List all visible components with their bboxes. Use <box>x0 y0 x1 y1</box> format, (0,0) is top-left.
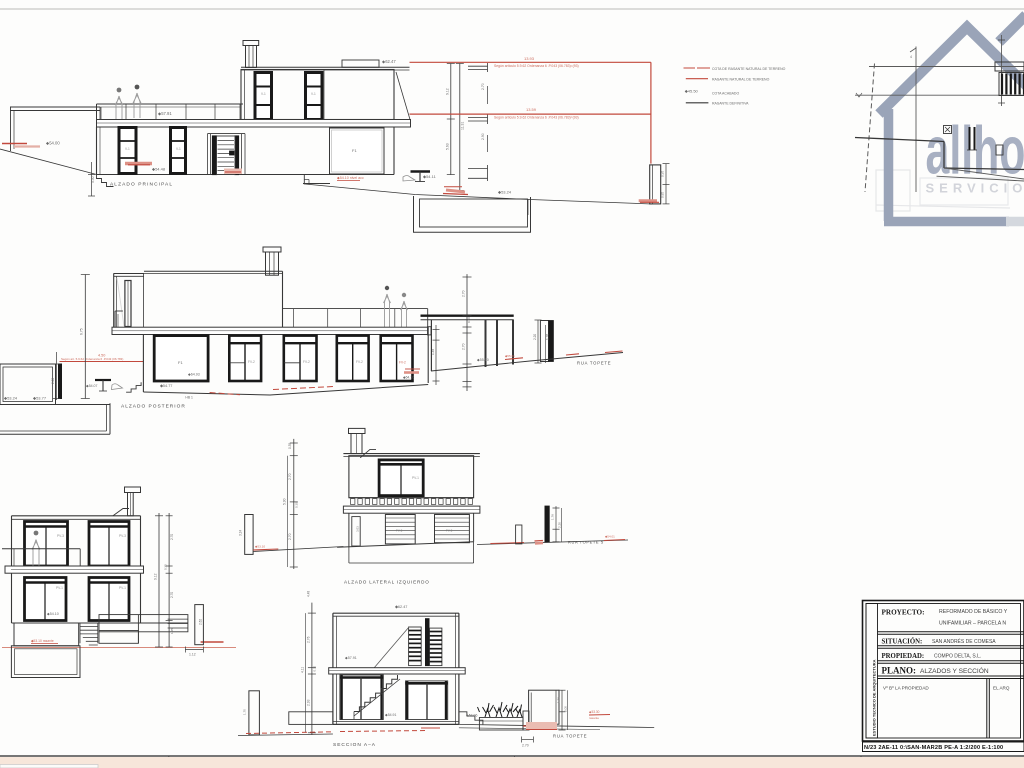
svg-text:2.70: 2.70 <box>170 534 174 540</box>
svg-text:ESTUDIO TECNICO DE ARQUITECTUR: ESTUDIO TECNICO DE ARQUITECTURA <box>872 659 877 736</box>
svg-text:1.76: 1.76 <box>557 697 561 703</box>
svg-text:◆54.48: ◆54.48 <box>152 167 166 172</box>
svg-text:allho: allho <box>926 114 1024 189</box>
svg-text:N/23 2AE-11 0:\SAN-MAR2B PE-A: N/23 2AE-11 0:\SAN-MAR2B PE-A 1:2/200 E-… <box>864 745 1003 751</box>
svg-text:◆54.10: ◆54.10 <box>403 376 414 380</box>
svg-text:1.45: 1.45 <box>170 628 174 634</box>
svg-text:0.85: 0.85 <box>661 192 665 198</box>
svg-text:4.48: 4.48 <box>306 591 310 597</box>
svg-text:◆54.10: ◆54.10 <box>47 612 59 616</box>
svg-text:◆53.24: ◆53.24 <box>498 190 512 195</box>
svg-text:V-1: V-1 <box>311 92 316 96</box>
svg-text:◆54.01: ◆54.01 <box>605 535 615 539</box>
svg-text:RUA TOPETE: RUA TOPETE <box>553 734 587 739</box>
svg-text:RASANTE NATURAL DE TERRENO: RASANTE NATURAL DE TERRENO <box>712 77 770 81</box>
svg-text:FV-2: FV-2 <box>356 360 363 364</box>
svg-text:◆54.77: ◆54.77 <box>160 384 172 388</box>
svg-text:ALZADO PRINCIPAL: ALZADO PRINCIPAL <box>110 182 173 188</box>
svg-text:RUA TOPETE 5: RUA TOPETE 5 <box>568 540 604 545</box>
svg-text:◆54.06: ◆54.06 <box>466 714 478 718</box>
svg-text:3.03: 3.03 <box>356 526 360 532</box>
svg-text:2.70: 2.70 <box>288 473 292 480</box>
svg-text:PROPIEDAD:: PROPIEDAD: <box>882 653 925 660</box>
svg-text:◆54.00: ◆54.00 <box>46 141 60 146</box>
svg-text:◆54.11: ◆54.11 <box>423 174 437 179</box>
svg-text:2.93: 2.93 <box>306 699 310 706</box>
svg-text:0.30: 0.30 <box>91 176 95 183</box>
svg-text:V-1: V-1 <box>176 147 181 151</box>
svg-text:SERVICIOS: SERVICIOS <box>926 181 1024 196</box>
svg-text:◆53.10 rasante: ◆53.10 rasante <box>31 639 54 643</box>
svg-text:SITUACIÓN:: SITUACIÓN: <box>882 638 923 646</box>
svg-text:SAN ANDRÉS DE COMESA: SAN ANDRÉS DE COMESA <box>932 638 996 645</box>
svg-text:Vº Bº LA PROPIEDAD: Vº Bº LA PROPIEDAD <box>883 686 929 691</box>
svg-text:PV-1: PV-1 <box>56 586 63 590</box>
svg-text:2.20: 2.20 <box>533 334 537 340</box>
svg-text:0.30: 0.30 <box>164 564 168 570</box>
svg-text:1.12: 1.12 <box>189 653 196 657</box>
svg-text:COMPO DELTA, S.L.: COMPO DELTA, S.L. <box>934 654 981 660</box>
svg-text:HB 1: HB 1 <box>185 396 193 400</box>
svg-text:2.70: 2.70 <box>481 83 485 90</box>
svg-text:2.20: 2.20 <box>51 378 55 384</box>
svg-text:COTA DE RASANTE NATURAL DE TER: COTA DE RASANTE NATURAL DE TERRENO <box>712 67 786 71</box>
svg-text:2.70: 2.70 <box>288 533 292 540</box>
svg-text:SECCION A–A: SECCION A–A <box>333 742 376 748</box>
svg-text:1.70: 1.70 <box>243 709 247 715</box>
svg-text:2.70: 2.70 <box>170 592 174 598</box>
svg-text:PLANO:: PLANO: <box>882 666 917 676</box>
svg-text:Según artículo 5.9.62 Ordenanz: Según artículo 5.9.62 Ordenanza 6 .P.043… <box>494 64 579 68</box>
svg-text:FV-2: FV-2 <box>248 360 255 364</box>
svg-text:3.24: 3.24 <box>239 530 243 536</box>
svg-text:UNIFAMILIAR – PARCELA N: UNIFAMILIAR – PARCELA N <box>939 621 1006 627</box>
svg-text:0.95: 0.95 <box>661 171 665 177</box>
svg-text:0.60: 0.60 <box>467 317 471 323</box>
svg-text:5.90: 5.90 <box>283 498 287 505</box>
svg-text:rasante: rasante <box>589 716 599 720</box>
svg-text:13.59: 13.59 <box>526 107 537 112</box>
svg-text:Según artículo 5.9.62 Ordenanz: Según artículo 5.9.62 Ordenanza 6 .P.043… <box>494 116 579 120</box>
svg-text:PV-1: PV-1 <box>119 586 126 590</box>
svg-text:EL ARQ: EL ARQ <box>993 686 1010 691</box>
svg-text:◆45.50: ◆45.50 <box>685 89 699 94</box>
svg-text:2.20: 2.20 <box>558 522 562 528</box>
svg-text:FV-2: FV-2 <box>396 529 403 533</box>
svg-text:◆57.91: ◆57.91 <box>158 111 172 116</box>
svg-text:RUA TOPETE: RUA TOPETE <box>577 361 611 366</box>
svg-text:◆54.91: ◆54.91 <box>385 713 397 717</box>
svg-text:◆55.50: ◆55.50 <box>477 358 489 362</box>
svg-text:F1: F1 <box>352 148 357 153</box>
svg-text:1.76: 1.76 <box>551 514 555 520</box>
svg-text:PROYECTO:: PROYECTO: <box>882 609 925 617</box>
svg-text:FV-2: FV-2 <box>399 361 406 365</box>
svg-text:◆62.47: ◆62.47 <box>382 59 396 64</box>
svg-text:11.31: 11.31 <box>461 122 465 130</box>
svg-text:◆64.93: ◆64.93 <box>188 373 200 377</box>
svg-text:F1: F1 <box>178 360 183 365</box>
svg-text:ALZADO LATERAL IZQUIERDO: ALZADO LATERAL IZQUIERDO <box>344 580 430 585</box>
svg-text:RASANTE DEFINITIVA: RASANTE DEFINITIVA <box>712 101 749 105</box>
svg-text:◆54.10 nivel acc: ◆54.10 nivel acc <box>337 176 364 180</box>
svg-text:9.12: 9.12 <box>154 573 158 580</box>
svg-text:◆54.07: ◆54.07 <box>86 384 98 388</box>
svg-text:0.30: 0.30 <box>295 502 299 508</box>
svg-text:◆57.91: ◆57.91 <box>345 656 357 660</box>
svg-text:Según art. 5.9.62 Ordenanza 6: Según art. 5.9.62 Ordenanza 6 .P.043 (06… <box>61 357 123 361</box>
svg-text:ALZADOS Y SECCIÓN: ALZADOS Y SECCIÓN <box>920 666 989 675</box>
svg-text:V-1: V-1 <box>261 92 266 96</box>
svg-text:◆53.30: ◆53.30 <box>589 710 600 714</box>
svg-text:4: 4 <box>910 55 912 59</box>
svg-text:2.76: 2.76 <box>306 636 310 643</box>
svg-text:2.70: 2.70 <box>462 343 466 350</box>
svg-text:0.35: 0.35 <box>288 443 292 449</box>
svg-text:◆55.01: ◆55.01 <box>505 354 515 358</box>
svg-text:2.62: 2.62 <box>199 619 203 625</box>
svg-text:9.12: 9.12 <box>446 88 450 95</box>
svg-text:0.30: 0.30 <box>313 665 317 671</box>
svg-text:6.75: 6.75 <box>80 328 84 335</box>
svg-text:PV-1: PV-1 <box>412 476 419 480</box>
svg-text:PV-3: PV-3 <box>119 534 126 538</box>
svg-text:2.00: 2.00 <box>564 706 568 712</box>
svg-text:4.11: 4.11 <box>301 667 305 673</box>
svg-text:2.70: 2.70 <box>522 744 529 748</box>
svg-text:FV-2: FV-2 <box>303 360 310 364</box>
svg-text:2.70: 2.70 <box>462 290 466 297</box>
svg-text:1.76: 1.76 <box>546 334 550 340</box>
svg-text:PV-3: PV-3 <box>57 534 64 538</box>
svg-text:◆53.24: ◆53.24 <box>4 396 18 401</box>
svg-text:5.63: 5.63 <box>446 143 450 150</box>
svg-text:FV-2: FV-2 <box>446 529 453 533</box>
svg-text:◆53.10: ◆53.10 <box>255 545 265 549</box>
svg-text:V-1: V-1 <box>125 147 130 151</box>
svg-text:◆62.47: ◆62.47 <box>395 605 407 609</box>
svg-text:COTA ACABADO: COTA ACABADO <box>712 91 739 95</box>
svg-text:REFORMADO DE BÁSICO Y: REFORMADO DE BÁSICO Y <box>939 608 1008 615</box>
svg-text:13.93: 13.93 <box>524 56 535 61</box>
svg-text:◆53.77: ◆53.77 <box>33 396 47 401</box>
svg-text:ALZADO POSTERIOR: ALZADO POSTERIOR <box>121 404 186 410</box>
svg-text:2.90: 2.90 <box>481 133 485 140</box>
